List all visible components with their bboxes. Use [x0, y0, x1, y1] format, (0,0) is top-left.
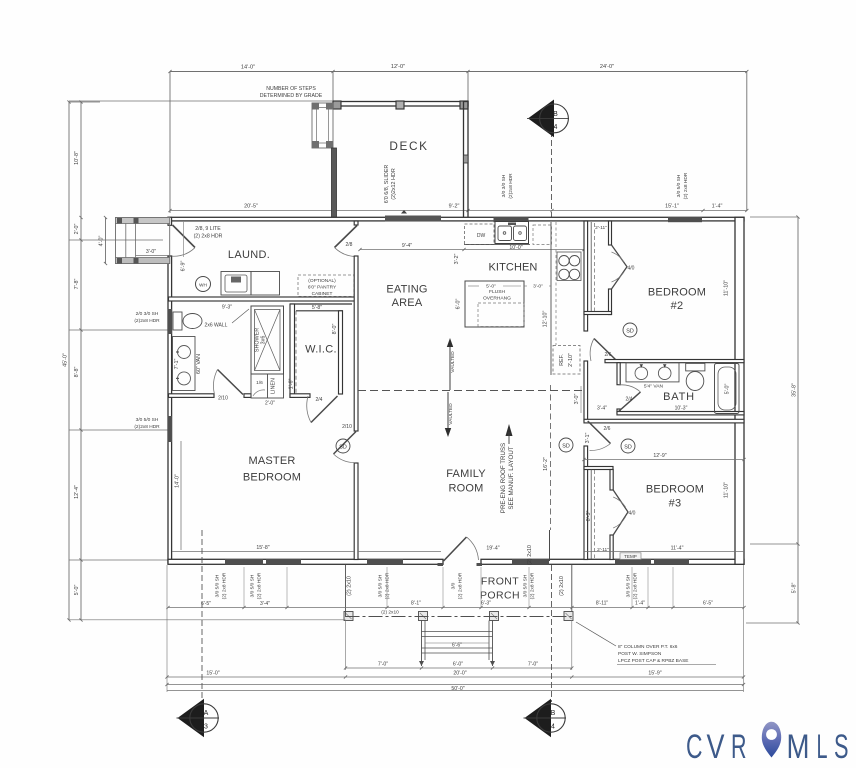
svg-text:(2) 2x8 HDR: (2) 2x8 HDR: [683, 172, 689, 199]
svg-text:2x6 WALL: 2x6 WALL: [205, 323, 228, 329]
svg-text:MASTER: MASTER: [248, 455, 295, 467]
svg-text:12'-0": 12'-0": [391, 64, 405, 70]
svg-text:15'-1": 15'-1": [665, 204, 679, 210]
svg-text:OVERHANG: OVERHANG: [483, 296, 511, 302]
svg-text:35'-8": 35'-8": [792, 383, 798, 397]
svg-text:8'-1": 8'-1": [411, 601, 421, 607]
svg-text:(2)2x8 HDR: (2)2x8 HDR: [508, 173, 514, 199]
svg-text:20'-5": 20'-5": [244, 204, 258, 210]
svg-text:5'-8": 5'-8": [312, 305, 322, 311]
svg-text:9'-3": 9'-3": [222, 305, 232, 311]
svg-text:FLUSH: FLUSH: [489, 289, 506, 295]
svg-text:2/4: 2/4: [316, 397, 323, 403]
svg-text:(2) 2x10: (2) 2x10: [527, 545, 533, 565]
svg-text:3'-0": 3'-0": [146, 249, 156, 255]
svg-text:LAUND.: LAUND.: [228, 249, 270, 261]
svg-text:12'-4": 12'-4": [74, 485, 80, 499]
svg-text:(2)2x12 HDR: (2)2x12 HDR: [391, 168, 397, 200]
svg-text:(2) 2x8 HDR: (2) 2x8 HDR: [194, 234, 223, 240]
svg-text:16'-2": 16'-2": [543, 457, 549, 471]
svg-text:PRE-ENG ROOF TRUSS: PRE-ENG ROOF TRUSS: [500, 443, 507, 513]
svg-text:(OPTIONAL): (OPTIONAL): [308, 278, 336, 284]
svg-text:5'-8": 5'-8": [792, 583, 798, 594]
svg-text:8" COLUMN OVER P.T. 6x6: 8" COLUMN OVER P.T. 6x6: [618, 644, 678, 650]
svg-text:DW: DW: [477, 233, 486, 239]
svg-text:14'-0": 14'-0": [175, 474, 181, 488]
svg-text:M: M: [787, 728, 810, 766]
svg-text:LPCZ POST CAP & RPBZ BASE: LPCZ POST CAP & RPBZ BASE: [618, 658, 688, 664]
svg-text:(2) 2x8 HDR: (2) 2x8 HDR: [633, 572, 639, 599]
svg-text:AREA: AREA: [392, 297, 423, 309]
svg-text:6'-0": 6'-0": [453, 662, 463, 668]
svg-text:2'-0": 2'-0": [265, 401, 275, 407]
svg-text:8'-3": 8'-3": [586, 511, 592, 522]
svg-text:60" VAN: 60" VAN: [196, 354, 202, 374]
svg-text:4: 4: [551, 724, 555, 731]
svg-text:15'-0": 15'-0": [206, 671, 219, 677]
svg-text:5'-0": 5'-0": [725, 384, 731, 395]
svg-text:B: B: [551, 710, 556, 717]
svg-text:9'-2": 9'-2": [449, 204, 460, 210]
svg-text:7'-8": 7'-8": [74, 279, 80, 290]
svg-text:BEDROOM: BEDROOM: [646, 484, 704, 496]
svg-text:6'-0": 6'-0": [456, 299, 462, 310]
svg-text:2/6: 2/6: [605, 352, 612, 358]
svg-text:50'-0": 50'-0": [451, 686, 464, 692]
svg-text:12'-9": 12'-9": [653, 453, 666, 459]
svg-text:10'-8": 10'-8": [74, 151, 80, 165]
svg-text:2/6: 2/6: [604, 426, 611, 432]
svg-text:6'-5": 6'-5": [703, 601, 713, 607]
svg-text:2'-11": 2'-11": [597, 547, 609, 553]
svg-text:B: B: [553, 111, 558, 118]
svg-text:3/0 3/0 SH: 3/0 3/0 SH: [501, 174, 507, 197]
svg-text:SD: SD: [562, 444, 570, 450]
svg-text:3/0: 3/0: [451, 582, 457, 589]
svg-text:5'4" VAN: 5'4" VAN: [644, 384, 664, 390]
svg-text:SD: SD: [339, 445, 347, 451]
svg-text:VAULTED: VAULTED: [448, 403, 454, 425]
svg-text:3'-1": 3'-1": [585, 433, 591, 444]
svg-text:KITCHEN: KITCHEN: [489, 262, 538, 274]
svg-text:BEDROOM: BEDROOM: [243, 472, 301, 484]
svg-text:24'-0": 24'-0": [600, 64, 614, 70]
svg-text:2'-10": 2'-10": [568, 353, 574, 367]
svg-text:11'-10": 11'-10": [724, 482, 730, 498]
svg-text:4/0: 4/0: [628, 266, 635, 272]
svg-text:DECK: DECK: [389, 139, 428, 153]
svg-text:CABINET: CABINET: [312, 291, 333, 297]
svg-text:6'-6": 6'-6": [452, 643, 462, 649]
svg-text:3x6: 3x6: [261, 336, 267, 345]
svg-text:BEDROOM: BEDROOM: [648, 287, 706, 299]
svg-text:5'-0": 5'-0": [74, 585, 80, 596]
svg-text:3/0 5/0 SH: 3/0 5/0 SH: [215, 574, 221, 597]
svg-text:3'-2": 3'-2": [454, 254, 460, 265]
svg-text:6'-9": 6'-9": [181, 261, 187, 272]
svg-text:SEE MANUF. LAYOUT: SEE MANUF. LAYOUT: [508, 446, 515, 509]
svg-text:3/0 5/0 SH: 3/0 5/0 SH: [136, 417, 159, 423]
svg-text:3/0 5/0 SH: 3/0 5/0 SH: [523, 574, 529, 597]
svg-text:(2) 2x8 HDR: (2) 2x8 HDR: [257, 572, 263, 599]
svg-text:#3: #3: [669, 498, 682, 510]
svg-text:7'-1": 7'-1": [174, 359, 180, 370]
svg-text:4'-0": 4'-0": [99, 236, 105, 247]
svg-text:4: 4: [554, 124, 558, 131]
svg-text:10'-0": 10'-0": [509, 245, 522, 251]
svg-text:(2)2x8 HDR: (2)2x8 HDR: [134, 424, 160, 430]
svg-text:3'-0": 3'-0": [574, 394, 580, 405]
svg-text:SD: SD: [626, 329, 634, 335]
svg-text:#2: #2: [671, 300, 684, 312]
svg-text:POST W. SIMPSON: POST W. SIMPSON: [618, 651, 662, 657]
svg-text:1'-4": 1'-4": [712, 204, 723, 210]
svg-text:11'-10": 11'-10": [724, 280, 730, 296]
svg-text:(2) 2x10: (2) 2x10: [559, 576, 565, 596]
svg-text:6'0 6/8, SLIDER: 6'0 6/8, SLIDER: [384, 165, 390, 204]
svg-text:6'-3": 6'-3": [481, 601, 491, 607]
svg-text:R: R: [731, 728, 747, 766]
svg-text:(2) 2x8 HDR: (2) 2x8 HDR: [385, 572, 391, 599]
svg-text:8'-8": 8'-8": [74, 367, 80, 378]
svg-text:1'-4": 1'-4": [635, 601, 645, 607]
svg-text:7'-0": 7'-0": [528, 662, 538, 668]
svg-text:A: A: [204, 710, 209, 717]
svg-text:3'-0": 3'-0": [533, 284, 543, 290]
svg-text:(2) 2x10: (2) 2x10: [381, 610, 399, 616]
svg-text:2/10: 2/10: [218, 396, 228, 402]
svg-text:19'-4": 19'-4": [486, 546, 499, 552]
svg-text:L: L: [817, 728, 828, 766]
svg-text:9'-4": 9'-4": [402, 243, 412, 249]
svg-text:1/6: 1/6: [256, 380, 263, 386]
svg-text:NUMBER OF STEPS: NUMBER OF STEPS: [266, 86, 316, 92]
svg-text:3'-4": 3'-4": [597, 406, 607, 412]
svg-text:V: V: [707, 728, 725, 766]
svg-text:3: 3: [204, 724, 208, 731]
svg-text:(2) 2x8 HDR: (2) 2x8 HDR: [458, 572, 464, 599]
svg-text:FRONT: FRONT: [481, 576, 519, 588]
svg-text:FAMILY: FAMILY: [446, 468, 486, 480]
svg-text:2/10: 2/10: [342, 424, 352, 430]
svg-text:2'-11": 2'-11": [595, 225, 607, 231]
svg-text:2'-0": 2'-0": [74, 224, 80, 235]
svg-text:WH: WH: [199, 282, 207, 287]
svg-text:(2) 2x8 HDR: (2) 2x8 HDR: [530, 572, 536, 599]
svg-text:SD: SD: [624, 445, 632, 451]
svg-text:ROOM: ROOM: [448, 483, 483, 495]
svg-text:8'-11": 8'-11": [596, 601, 609, 607]
svg-text:S: S: [834, 728, 849, 766]
svg-text:5'-0": 5'-0": [486, 284, 496, 290]
svg-text:3'-4": 3'-4": [260, 601, 270, 607]
svg-text:2/4: 2/4: [626, 397, 633, 403]
svg-text:2/8, 9 LITE: 2/8, 9 LITE: [195, 226, 221, 232]
svg-text:(2)2x8 HDR: (2)2x8 HDR: [134, 318, 160, 324]
svg-text:DETERMINED BY GRADE: DETERMINED BY GRADE: [260, 93, 323, 99]
svg-text:1'-6": 1'-6": [289, 379, 295, 390]
svg-text:3/0 5/0 SH: 3/0 5/0 SH: [250, 574, 256, 597]
svg-text:3/0 5/0 SH: 3/0 5/0 SH: [378, 574, 384, 597]
svg-text:7'-0": 7'-0": [378, 662, 388, 668]
svg-text:11'-4": 11'-4": [671, 546, 684, 552]
svg-text:10'-3": 10'-3": [675, 406, 688, 412]
svg-text:VAULTED: VAULTED: [450, 351, 456, 373]
svg-text:45'-0": 45'-0": [63, 353, 69, 367]
svg-text:6'0" PANTRY: 6'0" PANTRY: [308, 285, 337, 291]
svg-text:TEMP: TEMP: [624, 554, 637, 559]
svg-text:3/0 5/0 SH: 3/0 5/0 SH: [626, 574, 632, 597]
svg-text:20'-0": 20'-0": [453, 671, 466, 677]
svg-text:14'-0": 14'-0": [241, 65, 255, 71]
svg-text:W.I.C.: W.I.C.: [305, 344, 337, 356]
svg-text:12'-10": 12'-10": [543, 311, 549, 328]
svg-text:2/0 3/0 SH: 2/0 3/0 SH: [136, 311, 159, 317]
svg-text:15'-8": 15'-8": [256, 545, 269, 551]
svg-text:BATH: BATH: [663, 391, 695, 403]
svg-text:8'-0": 8'-0": [332, 324, 338, 335]
svg-text:2/8: 2/8: [346, 242, 353, 248]
svg-text:15'-9": 15'-9": [648, 671, 661, 677]
svg-text:(2) 2x8 HDR: (2) 2x8 HDR: [222, 572, 228, 599]
svg-text:(2) 2x10: (2) 2x10: [347, 576, 353, 596]
svg-text:EATING: EATING: [386, 284, 427, 296]
svg-text:6'-5": 6'-5": [201, 601, 211, 607]
svg-text:C: C: [686, 728, 703, 766]
svg-text:3/0 5/0 SH: 3/0 5/0 SH: [676, 174, 682, 197]
svg-text:LINEN: LINEN: [271, 378, 277, 394]
svg-text:4/0: 4/0: [629, 511, 636, 517]
svg-text:REF.: REF.: [559, 354, 565, 366]
